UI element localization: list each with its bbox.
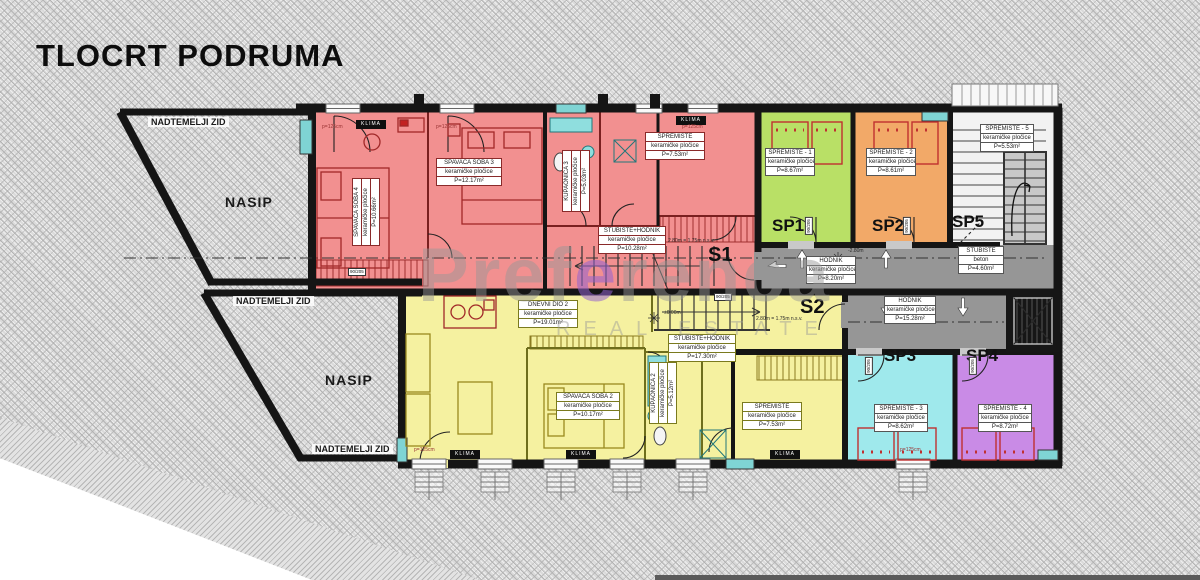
- room-label-stairwell: STUBIŠTE beton P=4.60m²: [958, 246, 1004, 274]
- light-wells: [415, 472, 927, 500]
- window-dim-1: p=125cm: [322, 124, 343, 130]
- floor-plan-svg: [0, 0, 1200, 580]
- level-note-zero: ±0.00m: [664, 310, 681, 316]
- level-note-upper: -2.80m: [848, 248, 864, 254]
- label-nasip-1: NASIP: [222, 194, 276, 210]
- unit-code-sp3: SP3: [884, 346, 916, 366]
- room-label-hall-s2: STUBIŠTE+HODNIK keramičke pločice P=17.3…: [668, 334, 736, 362]
- klima-tag-4: KLIMA: [566, 450, 596, 459]
- door-tag-3: 90/205: [903, 217, 911, 235]
- headroom-note-1: 2.80m = 1.75m n.s.v.: [668, 238, 714, 244]
- room-label-hall-lower: HODNIK keramičke pločice P=15.28m²: [884, 296, 936, 324]
- door-tag-5: 90/205: [969, 357, 977, 375]
- window-dim-5: p=125cm: [900, 447, 921, 453]
- room-label-bedroom3: SPAVAĆA SOBA 3 keramičke pločice P=12.17…: [436, 158, 502, 186]
- door-tag-1: 90/205: [348, 268, 366, 276]
- label-nasip-2: NASIP: [322, 372, 376, 388]
- unit-code-s2: S2: [800, 296, 824, 319]
- exterior-steps: [952, 84, 1058, 106]
- room-label-bedroom4: SPAVAĆA SOBA 4 keramičke pločice P=10.66…: [352, 178, 380, 246]
- door-tag-4: 90/205: [865, 357, 873, 375]
- klima-tag-1: KLIMA: [356, 120, 386, 129]
- label-nadtemelji-zid-2: NADTEMELJI ZID: [233, 296, 314, 306]
- unit-code-sp2: SP2: [872, 216, 904, 236]
- door-tag-6: 90/205: [714, 293, 732, 301]
- unit-code-sp1: SP1: [772, 216, 804, 236]
- room-label-hall-upper: HODNIK keramičke pločice P=8.20m²: [806, 256, 856, 284]
- page-title: TLOCRT PODRUMA: [36, 38, 344, 74]
- door-tag-2: 90/205: [805, 217, 813, 235]
- room-label-sp5: SPREMIŠTE - 5 keramičke pločice P=5.53m²: [980, 124, 1034, 152]
- unit-code-s1: S1: [708, 244, 732, 267]
- room-label-bedroom2: SPAVAĆA SOBA 2 keramičke pločice P=10.17…: [556, 392, 620, 420]
- unit-code-sp5: SP5: [952, 212, 984, 232]
- floor-plan-page: TLOCRT PODRUMA NADTEMELJI ZID NASIP NADT…: [0, 0, 1200, 580]
- room-label-bathroom3: KUPAONICA 3 keramičke pločice P=5.03m²: [562, 150, 590, 212]
- window-dim-3: p=125cm: [682, 124, 703, 130]
- label-nadtemelji-zid-3: NADTEMELJI ZID: [312, 444, 393, 454]
- room-label-storage-s1: SPREMIŠTE keramičke pločice P=7.53m²: [645, 132, 705, 160]
- room-label-living-s2: DNEVNI DIO 2 keramičke pločice P=19.01m²: [518, 300, 578, 328]
- room-label-hall-s1: STUBIŠTE+HODNIK keramičke pločice P=10.2…: [598, 226, 666, 254]
- room-label-bathroom2: KUPAONICA 2 keramičke pločice P=5.12m²: [649, 362, 677, 424]
- room-label-sp1: SPREMIŠTE - 1 keramičke pločice P=8.67m²: [765, 148, 815, 176]
- window-dim-4: p=125cm: [414, 447, 435, 453]
- room-label-sp2: SPREMIŠTE - 2 keramičke pločice P=8.61m²: [866, 148, 916, 176]
- klima-tag-5: KLIMA: [770, 450, 800, 459]
- room-label-storage-s2: SPREMIŠTE keramičke pločice P=7.53m²: [742, 402, 802, 430]
- room-label-sp4: SPREMIŠTE - 4 keramičke pločice P=8.72m²: [978, 404, 1032, 432]
- room-fills: [312, 110, 1058, 464]
- elevator-shaft: [1006, 290, 1060, 352]
- headroom-note-2: 2.80m = 1.75m n.s.v.: [756, 316, 802, 322]
- label-nadtemelji-zid-1: NADTEMELJI ZID: [148, 117, 229, 127]
- window-dim-2: p=125cm: [436, 124, 457, 130]
- room-label-sp3: SPREMIŠTE - 3 keramičke pločice P=8.62m²: [874, 404, 928, 432]
- klima-tag-3: KLIMA: [450, 450, 480, 459]
